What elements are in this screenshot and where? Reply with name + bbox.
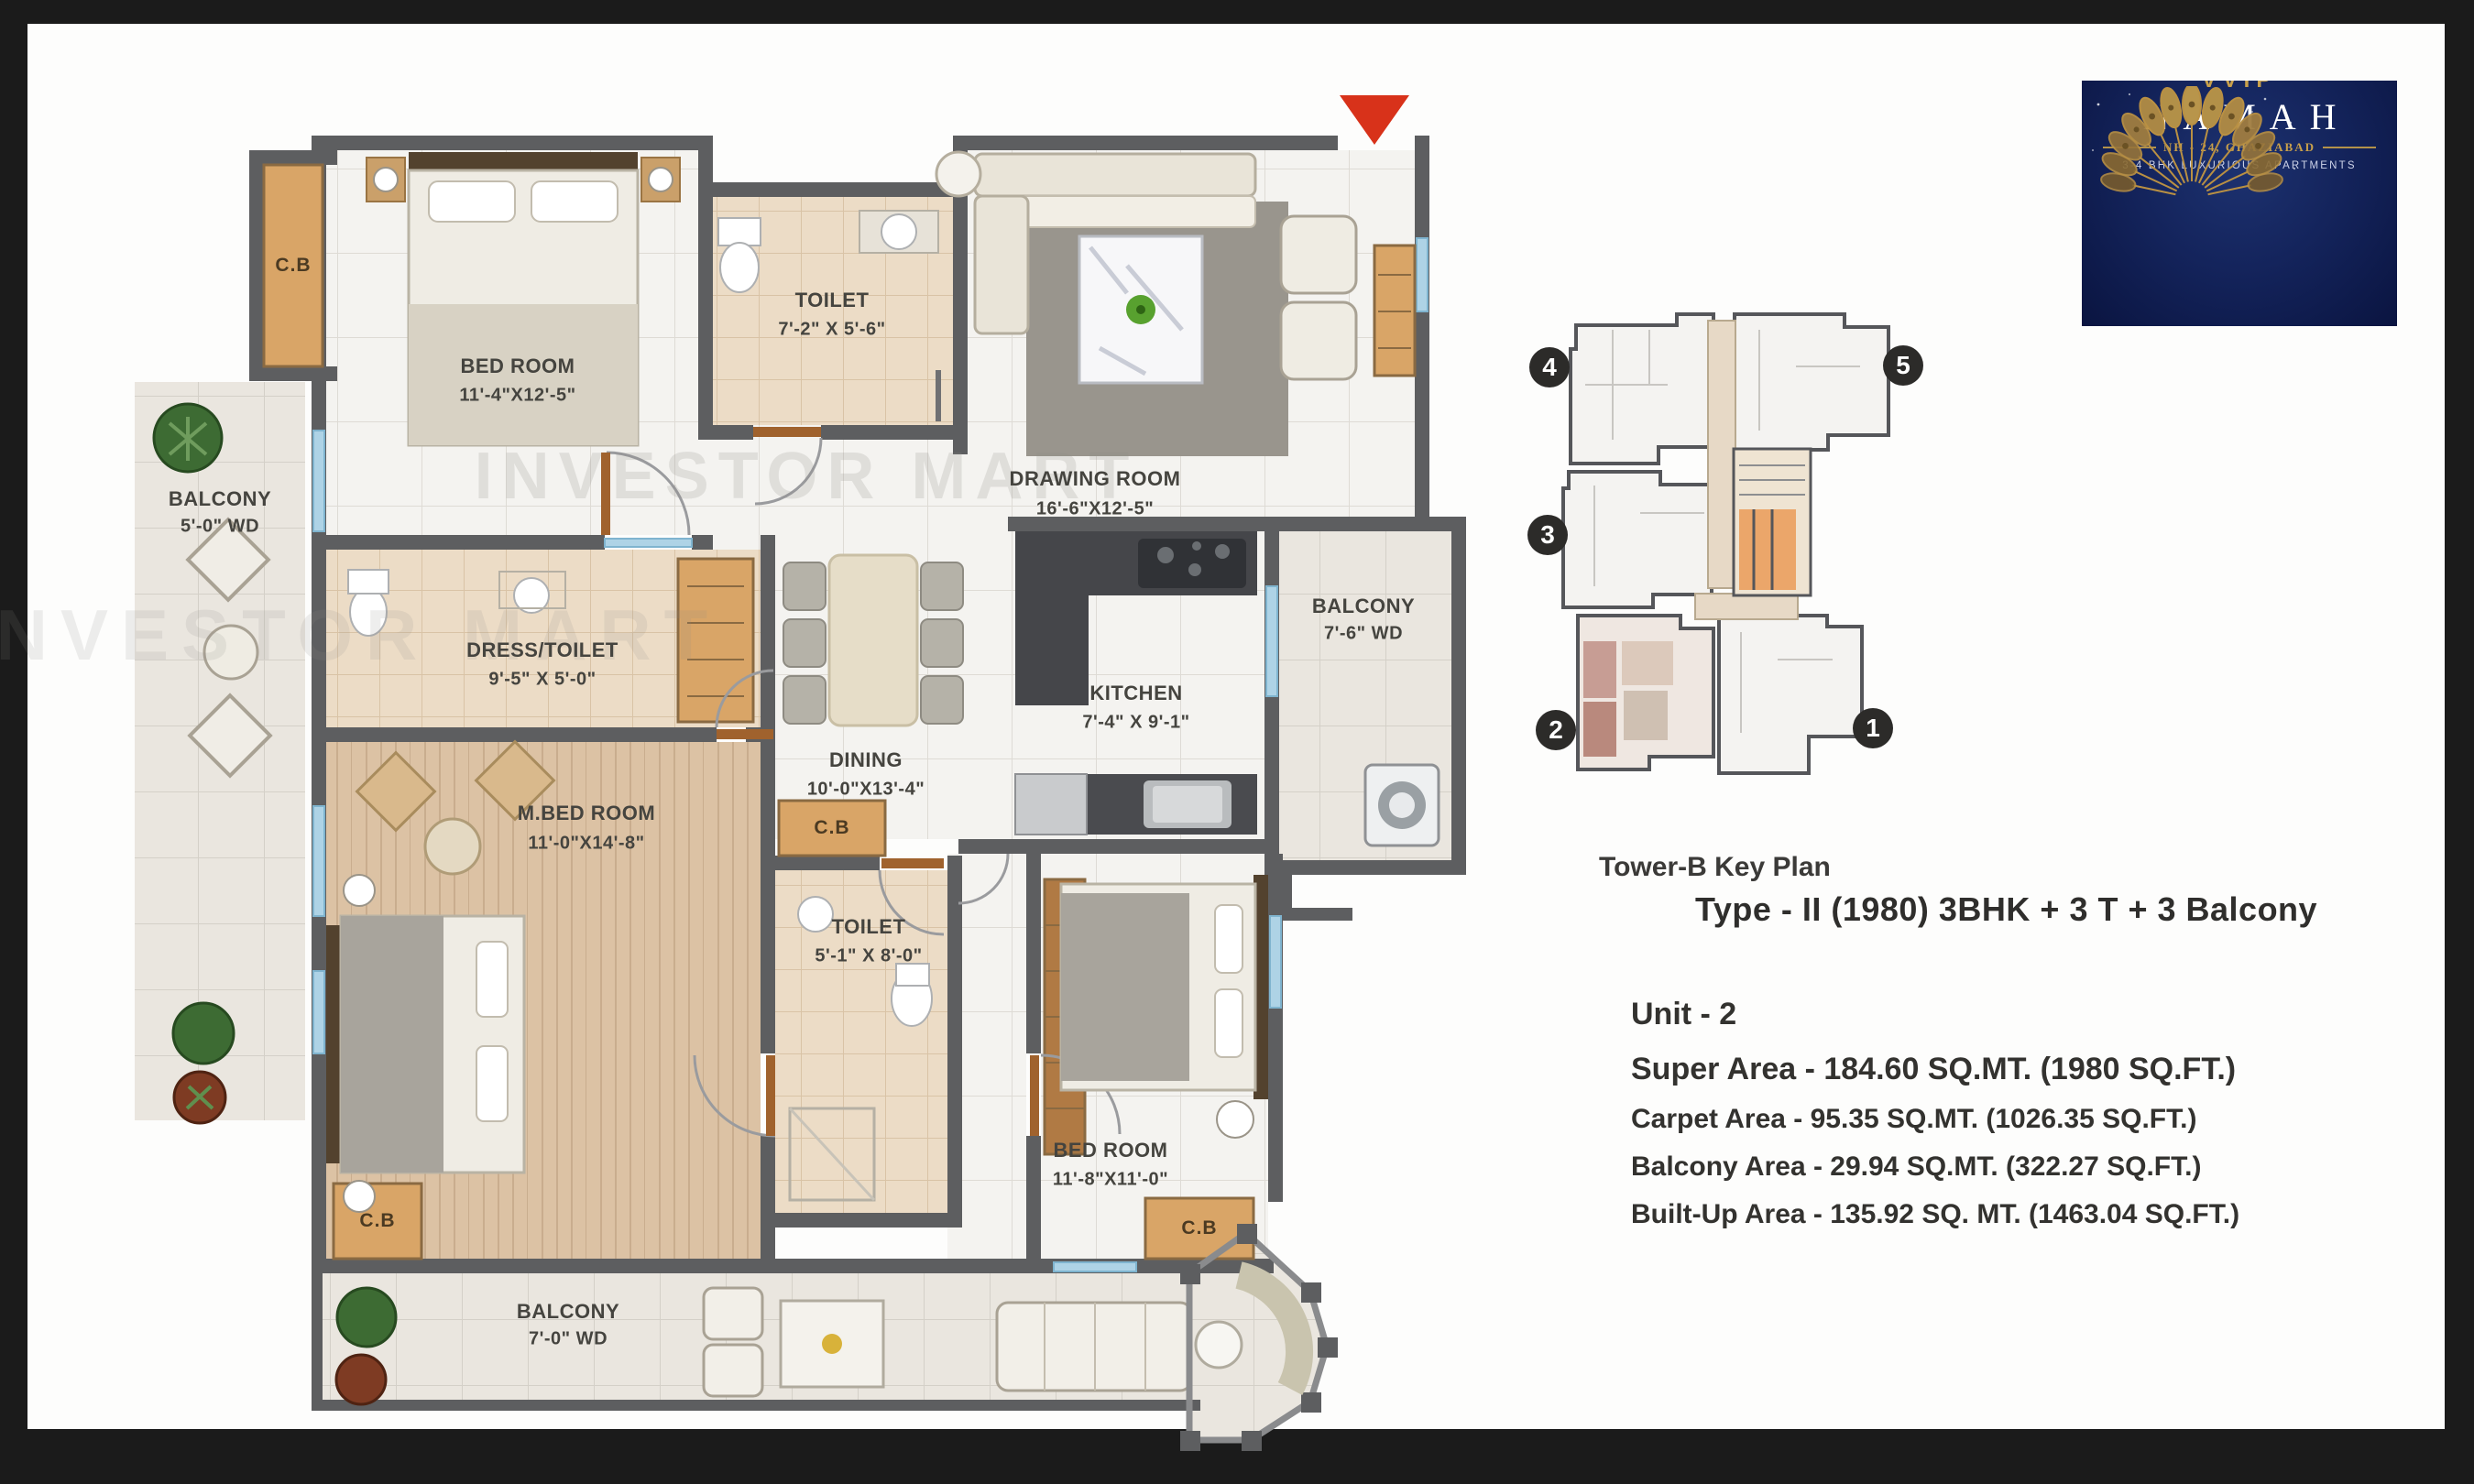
carpet-area-line: Carpet Area - 95.35 SQ.MT. (1026.35 SQ.F…: [1631, 1104, 2196, 1135]
room-label-kitchen: KITCHEN: [1089, 682, 1182, 705]
room-dims-toilet2: 5'-1" X 8'-0": [815, 946, 922, 967]
key-plan-unit-5-badge: 5: [1883, 345, 1923, 386]
unit-type-line: Type - II (1980) 3BHK + 3 T + 3 Balcony: [1695, 890, 2317, 929]
room-label-balcony-bottom: BALCONY: [517, 1300, 619, 1324]
room-dims-kitchen: 7'-4" X 9'-1": [1082, 713, 1189, 734]
built-up-area-line: Built-Up Area - 135.92 SQ. MT. (1463.04 …: [1631, 1199, 2239, 1230]
key-plan-unit-4-badge: 4: [1529, 347, 1570, 387]
room-label-toilet1: TOILET: [795, 289, 870, 312]
key-plan-unit-1-badge: 1: [1853, 708, 1893, 748]
rule-line-right: [2323, 147, 2376, 148]
key-plan-unit-2-badge: 2: [1536, 710, 1576, 750]
room-label-dining: DINING: [829, 748, 903, 772]
watermark: INVESTOR MART: [0, 594, 720, 677]
room-label-toilet2: TOILET: [832, 915, 906, 939]
room-dims-dress-toilet: 9'-5" X 5'-0": [488, 670, 596, 691]
room-dims-balcony-bottom: 7'-0" WD: [529, 1329, 608, 1350]
closet-label-3: C.B: [1181, 1217, 1217, 1239]
super-area-line: Super Area - 184.60 SQ.MT. (1980 SQ.FT.): [1631, 1052, 2236, 1087]
room-label-dress-toilet: DRESS/TOILET: [466, 638, 618, 662]
unit-number-line: Unit - 2: [1631, 997, 1736, 1032]
room-dims-bedroom1: 11'-4"X12'-5": [459, 386, 575, 407]
room-label-bedroom2: BED ROOM: [1054, 1139, 1168, 1162]
room-label-balcony-left: BALCONY: [169, 487, 271, 511]
room-dims-balcony-left: 5'-0" WD: [181, 517, 259, 538]
closet-label-1: C.B: [275, 255, 311, 277]
room-dims-toilet1: 7'-2" X 5'-6": [778, 320, 885, 341]
closet-label-2: C.B: [814, 817, 849, 839]
room-label-master-bedroom: M.BED ROOM: [518, 802, 655, 825]
floor-plan-page: INVESTOR MART INVESTOR MART BED ROOM 11'…: [0, 0, 2474, 1484]
closet-label-4: C.B: [359, 1210, 395, 1232]
room-label-drawing-room: DRAWING ROOM: [1010, 467, 1181, 491]
peacock-fan-icon: [2082, 86, 2302, 203]
key-plan-unit-3-badge: 3: [1527, 515, 1568, 555]
room-dims-dining: 10'-0"X13'-4": [807, 780, 925, 801]
room-dims-drawing-room: 16'-6"X12'-5": [1036, 499, 1154, 520]
key-plan-title: Tower-B Key Plan: [1599, 852, 1831, 883]
room-dims-master-bedroom: 11'-0"X14'-8": [528, 834, 644, 855]
room-dims-bedroom2: 11'-8"X11'-0": [1053, 1170, 1168, 1191]
room-label-balcony-right: BALCONY: [1312, 595, 1415, 618]
brand-logo-card: VVIP NAMAH NH - 24, GHAZIABAD 3-4 BHK LU…: [2082, 81, 2397, 326]
room-label-bedroom1: BED ROOM: [461, 355, 575, 378]
room-dims-balcony-right: 7'-6" WD: [1324, 624, 1403, 645]
balcony-area-line: Balcony Area - 29.94 SQ.MT. (322.27 SQ.F…: [1631, 1151, 2201, 1183]
